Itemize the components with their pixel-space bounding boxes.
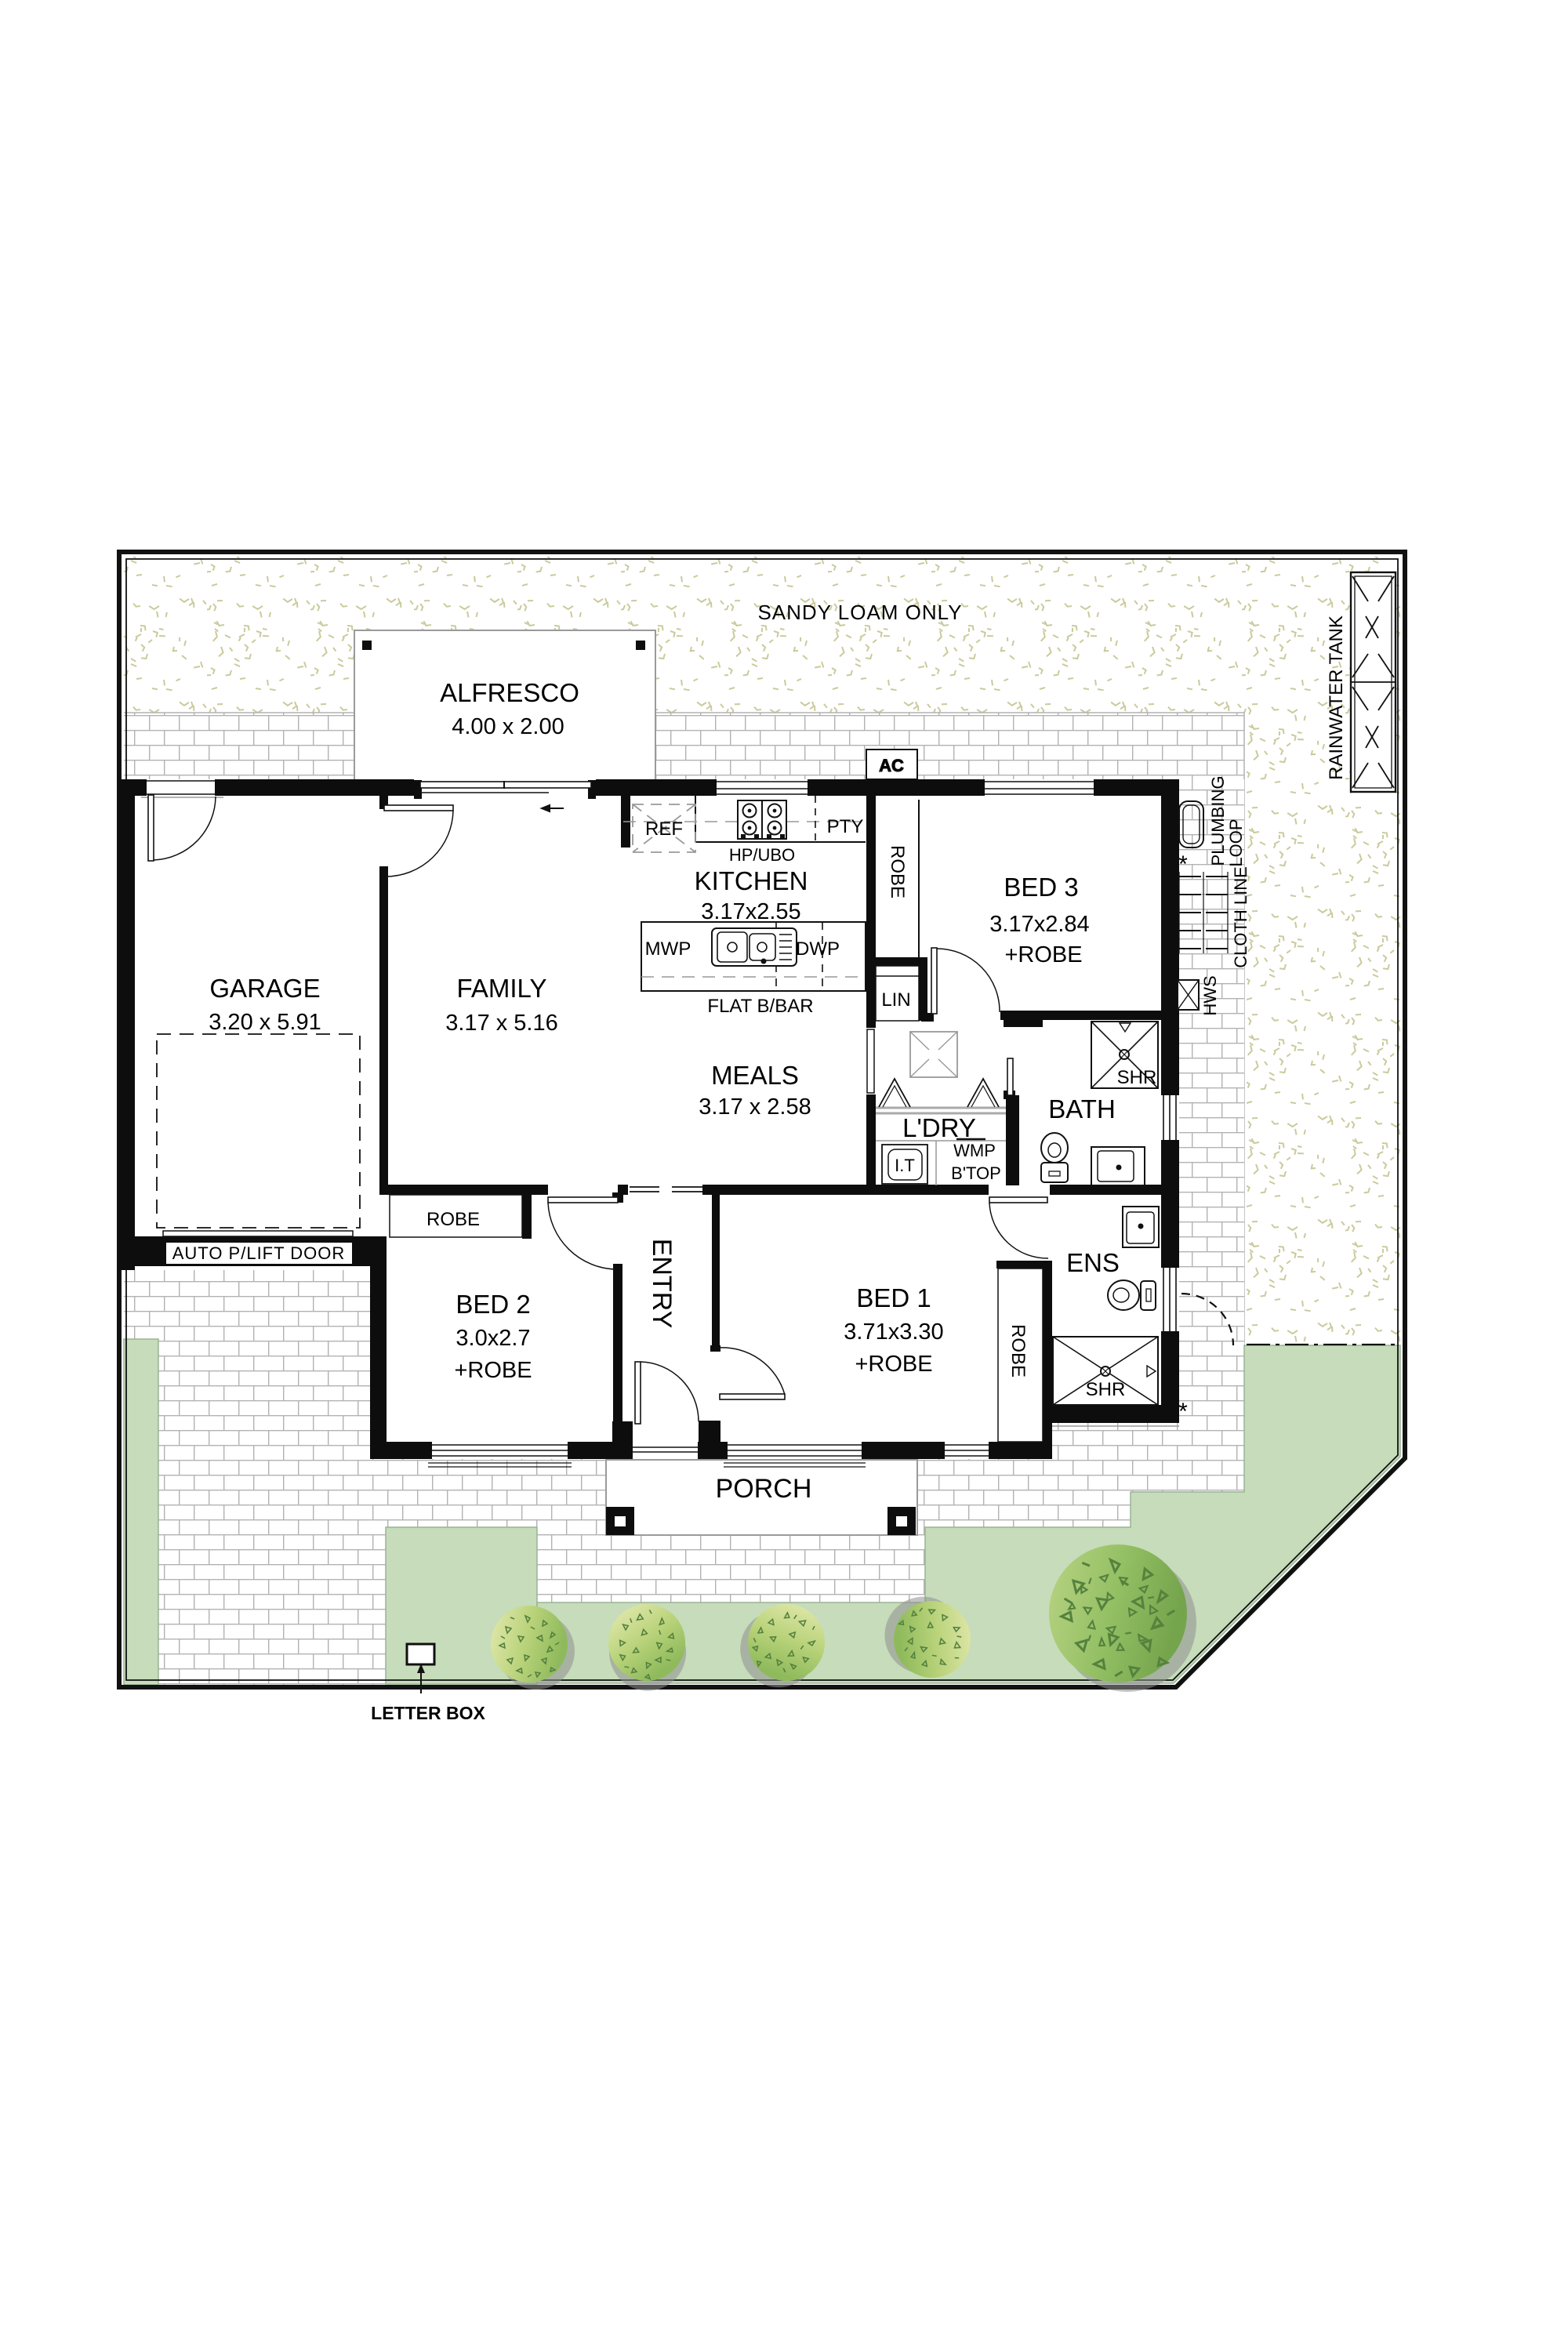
svg-text:3.17 x 5.16: 3.17 x 5.16 [445, 1011, 558, 1036]
svg-text:ALFRESCO: ALFRESCO [440, 678, 579, 707]
svg-text:LETTER BOX: LETTER BOX [371, 1703, 485, 1723]
svg-text:L'DRY: L'DRY [902, 1113, 976, 1142]
svg-text:HP/UBO: HP/UBO [729, 845, 795, 865]
svg-text:KITCHEN: KITCHEN [695, 866, 808, 895]
svg-text:3.0x2.7: 3.0x2.7 [456, 1326, 530, 1351]
svg-text:DWP: DWP [796, 938, 840, 960]
svg-text:ENTRY: ENTRY [647, 1239, 677, 1329]
svg-text:3.17x2.55: 3.17x2.55 [701, 899, 800, 924]
svg-text:+ROBE: +ROBE [454, 1358, 532, 1383]
svg-text:+ROBE: +ROBE [855, 1352, 932, 1377]
svg-text:3.71x3.30: 3.71x3.30 [844, 1319, 943, 1345]
svg-text:REF: REF [645, 818, 683, 840]
svg-text:GARAGE: GARAGE [209, 974, 320, 1003]
svg-text:HWS: HWS [1200, 975, 1220, 1015]
svg-text:FLAT B/BAR: FLAT B/BAR [707, 996, 813, 1017]
svg-text:3.20 x 5.91: 3.20 x 5.91 [209, 1010, 321, 1035]
svg-text:SHR: SHR [1117, 1067, 1157, 1088]
svg-text:ROBE: ROBE [887, 845, 908, 898]
svg-text:3.17x2.84: 3.17x2.84 [989, 912, 1089, 937]
svg-text:CLOTH LINE: CLOTH LINE [1231, 866, 1250, 968]
svg-text:I.T: I.T [895, 1156, 915, 1175]
svg-text:SHR: SHR [1086, 1379, 1126, 1400]
svg-text:FAMILY: FAMILY [457, 974, 547, 1003]
svg-text:ROBE: ROBE [426, 1209, 480, 1230]
svg-text:4.00 x 2.00: 4.00 x 2.00 [452, 714, 564, 739]
svg-text:B'TOP: B'TOP [951, 1163, 1001, 1183]
svg-text:WMP: WMP [953, 1141, 996, 1160]
svg-text:MWP: MWP [645, 938, 691, 960]
svg-text:BATH: BATH [1048, 1094, 1116, 1123]
svg-text:BED 2: BED 2 [456, 1290, 530, 1319]
svg-text:3.17 x 2.58: 3.17 x 2.58 [699, 1094, 811, 1120]
svg-text:+ROBE: +ROBE [1004, 942, 1082, 967]
svg-text:LIN: LIN [881, 989, 910, 1011]
svg-text:BED 3: BED 3 [1004, 873, 1078, 902]
svg-text:AUTO P/LIFT DOOR: AUTO P/LIFT DOOR [172, 1243, 346, 1263]
svg-text:RAINWATER TANK: RAINWATER TANK [1326, 615, 1347, 780]
svg-text:*: * [1178, 1399, 1188, 1425]
svg-text:SANDY LOAM ONLY: SANDY LOAM ONLY [757, 601, 962, 624]
svg-text:ENS: ENS [1066, 1248, 1120, 1277]
svg-text:MEALS: MEALS [711, 1061, 799, 1090]
svg-text:PORCH: PORCH [716, 1474, 812, 1504]
svg-text:BED 1: BED 1 [856, 1283, 931, 1312]
svg-text:ROBE: ROBE [1007, 1324, 1029, 1377]
svg-text:LOOP: LOOP [1226, 818, 1246, 866]
svg-text:*: * [1178, 851, 1188, 877]
svg-text:PTY: PTY [827, 816, 864, 837]
svg-text:AC: AC [879, 756, 904, 775]
svg-text:PLUMBING: PLUMBING [1208, 776, 1228, 866]
